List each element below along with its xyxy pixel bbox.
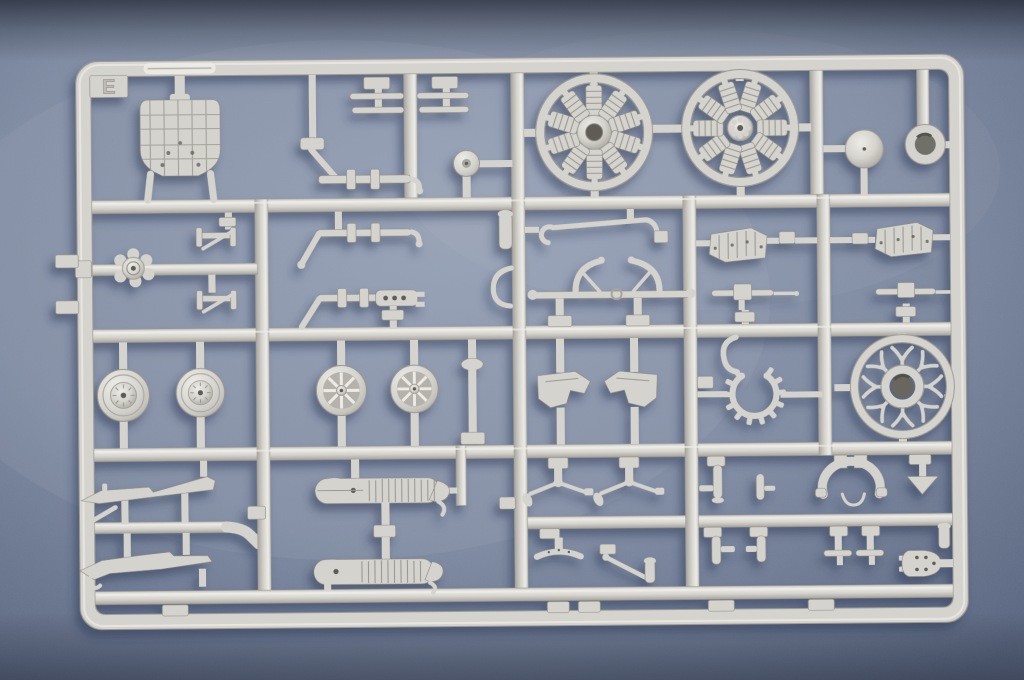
rail-v925: [917, 69, 929, 126]
part-small-cylinder-b: Small cylinder: [938, 523, 951, 549]
sprue-letter-tab: Runner letter tab E E: [90, 75, 128, 98]
photo-model-kit-sprue: Runner letter tab E E Embossed runner ma…: [0, 0, 1024, 680]
part-small-cylinder: Small cylinder: [644, 557, 656, 583]
part-cylinder-fitting: Small cylinder fitting: [498, 210, 513, 249]
rail-v460: [456, 445, 467, 505]
rail-h3b-left: [95, 521, 227, 533]
rail-v825: [817, 194, 832, 455]
rail-v818-top: [810, 70, 824, 194]
embossed-marking-strip: Embossed runner marking (illegible): [144, 63, 216, 75]
sprue-letter: E: [102, 76, 116, 98]
